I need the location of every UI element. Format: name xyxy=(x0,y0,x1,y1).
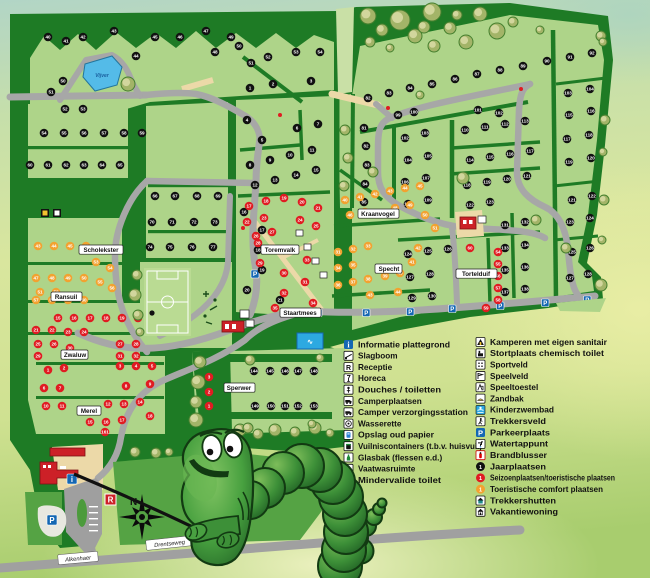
svg-text:13: 13 xyxy=(272,178,278,183)
svg-text:129: 129 xyxy=(408,296,416,301)
svg-text:18: 18 xyxy=(255,248,261,253)
svg-text:38: 38 xyxy=(365,277,371,282)
svg-text:Merel: Merel xyxy=(81,408,97,415)
svg-text:18: 18 xyxy=(263,199,269,204)
svg-text:44: 44 xyxy=(395,290,401,295)
svg-text:65: 65 xyxy=(117,163,123,168)
svg-text:144: 144 xyxy=(250,369,258,374)
svg-text:103: 103 xyxy=(421,131,429,136)
svg-text:137: 137 xyxy=(501,290,509,295)
svg-text:84: 84 xyxy=(362,182,368,187)
svg-text:8: 8 xyxy=(125,384,128,389)
svg-text:P: P xyxy=(408,310,412,316)
svg-text:1: 1 xyxy=(479,465,482,471)
svg-text:50: 50 xyxy=(81,276,87,281)
svg-text:41: 41 xyxy=(357,195,363,200)
svg-text:57: 57 xyxy=(101,131,107,136)
svg-text:1: 1 xyxy=(208,404,211,409)
svg-text:P: P xyxy=(364,311,368,317)
svg-text:11: 11 xyxy=(310,148,315,153)
svg-text:125: 125 xyxy=(424,249,432,254)
svg-text:45: 45 xyxy=(417,184,423,189)
svg-text:48: 48 xyxy=(212,50,218,55)
svg-text:59: 59 xyxy=(483,306,489,311)
svg-text:44: 44 xyxy=(402,186,408,191)
svg-text:69: 69 xyxy=(215,194,221,199)
svg-text:102: 102 xyxy=(495,111,503,116)
svg-text:49: 49 xyxy=(407,203,413,208)
svg-text:34: 34 xyxy=(335,266,341,271)
svg-text:21: 21 xyxy=(33,328,39,333)
svg-text:11: 11 xyxy=(60,404,65,409)
svg-text:16: 16 xyxy=(241,210,247,215)
svg-text:44: 44 xyxy=(133,54,139,59)
svg-text:7: 7 xyxy=(317,122,320,127)
svg-text:130: 130 xyxy=(428,294,436,299)
svg-text:131: 131 xyxy=(501,223,509,228)
svg-text:51: 51 xyxy=(248,61,254,66)
svg-text:85: 85 xyxy=(429,82,435,87)
svg-text:∿: ∿ xyxy=(307,339,313,346)
svg-text:43: 43 xyxy=(387,189,393,194)
svg-text:46: 46 xyxy=(347,213,353,218)
svg-text:150: 150 xyxy=(267,404,275,409)
svg-text:55: 55 xyxy=(61,131,67,136)
svg-text:126: 126 xyxy=(444,247,452,252)
svg-text:49: 49 xyxy=(228,35,234,40)
svg-text:17: 17 xyxy=(119,418,125,423)
svg-text:32: 32 xyxy=(350,247,356,252)
svg-text:Watertappunt: Watertappunt xyxy=(490,440,548,449)
svg-text:107: 107 xyxy=(422,176,430,181)
svg-text:7: 7 xyxy=(59,386,62,391)
svg-text:87: 87 xyxy=(474,72,480,77)
svg-text:P: P xyxy=(543,301,547,307)
svg-text:82: 82 xyxy=(363,144,369,149)
svg-text:17: 17 xyxy=(87,316,93,321)
svg-text:12: 12 xyxy=(252,183,258,188)
svg-text:22: 22 xyxy=(49,328,55,333)
svg-text:Brandblusser: Brandblusser xyxy=(490,451,548,460)
svg-text:Zandbak: Zandbak xyxy=(490,394,524,403)
svg-text:52: 52 xyxy=(62,107,68,112)
svg-text:Horeca: Horeca xyxy=(358,374,386,383)
svg-text:Stortplaats chemisch toilet: Stortplaats chemisch toilet xyxy=(490,349,604,358)
svg-text:16: 16 xyxy=(71,316,77,321)
svg-text:84: 84 xyxy=(407,86,413,91)
svg-text:112: 112 xyxy=(501,122,509,127)
svg-text:120: 120 xyxy=(503,177,511,182)
svg-text:Seizoenplaatsen/toeristische p: Seizoenplaatsen/toeristische plaatsen xyxy=(490,474,615,483)
svg-text:17: 17 xyxy=(259,228,265,233)
svg-text:127: 127 xyxy=(406,275,414,280)
svg-text:92: 92 xyxy=(589,51,595,56)
svg-text:102: 102 xyxy=(401,136,409,141)
svg-text:Zwaluw: Zwaluw xyxy=(64,352,87,359)
svg-text:28: 28 xyxy=(255,241,261,246)
svg-text:Camper verzorgingsstation: Camper verzorgingsstation xyxy=(358,408,468,417)
svg-text:42: 42 xyxy=(372,192,378,197)
svg-text:117: 117 xyxy=(526,149,534,154)
svg-text:22: 22 xyxy=(244,220,250,225)
svg-text:Parkeerplaats: Parkeerplaats xyxy=(490,428,550,437)
svg-text:16: 16 xyxy=(103,420,109,425)
svg-text:67: 67 xyxy=(172,194,178,199)
svg-text:53: 53 xyxy=(293,50,299,55)
svg-text:147: 147 xyxy=(294,369,302,374)
svg-text:10: 10 xyxy=(43,404,49,409)
svg-text:32: 32 xyxy=(133,354,139,359)
svg-text:Informatie plattegrond: Informatie plattegrond xyxy=(358,340,450,349)
svg-text:127: 127 xyxy=(566,276,574,281)
svg-text:54: 54 xyxy=(107,266,113,271)
svg-text:34: 34 xyxy=(310,301,316,306)
svg-text:28: 28 xyxy=(133,342,139,347)
svg-text:31: 31 xyxy=(117,354,123,359)
svg-text:128: 128 xyxy=(584,272,592,277)
svg-text:25: 25 xyxy=(35,342,41,347)
svg-text:37: 37 xyxy=(350,280,356,285)
svg-text:24: 24 xyxy=(81,330,87,335)
svg-text:Wasserette: Wasserette xyxy=(358,419,402,428)
svg-text:111: 111 xyxy=(481,125,489,130)
svg-text:91: 91 xyxy=(567,55,573,60)
svg-text:23: 23 xyxy=(261,216,267,221)
svg-text:50: 50 xyxy=(60,79,66,84)
svg-text:27: 27 xyxy=(269,230,275,235)
svg-text:46: 46 xyxy=(177,35,183,40)
svg-text:136: 136 xyxy=(521,265,529,270)
svg-text:5: 5 xyxy=(261,138,264,143)
svg-text:20: 20 xyxy=(299,200,305,205)
svg-text:2: 2 xyxy=(63,366,66,371)
svg-text:50: 50 xyxy=(422,213,428,218)
svg-text:100: 100 xyxy=(410,110,418,115)
svg-text:25: 25 xyxy=(313,224,319,229)
svg-text:P: P xyxy=(253,271,258,278)
svg-text:41: 41 xyxy=(409,260,415,265)
svg-text:10: 10 xyxy=(287,153,293,158)
svg-text:138: 138 xyxy=(521,287,529,292)
svg-text:119: 119 xyxy=(565,160,573,165)
svg-text:1: 1 xyxy=(479,476,482,482)
svg-text:56: 56 xyxy=(109,286,115,291)
svg-text:P: P xyxy=(49,516,54,525)
svg-text:128: 128 xyxy=(426,272,434,277)
svg-text:54: 54 xyxy=(495,250,501,255)
svg-text:R: R xyxy=(108,496,114,505)
svg-text:Receptie: Receptie xyxy=(358,363,393,372)
svg-text:73: 73 xyxy=(212,220,218,225)
svg-text:1: 1 xyxy=(47,368,50,373)
svg-text:39: 39 xyxy=(382,274,388,279)
svg-text:9: 9 xyxy=(149,382,152,387)
svg-text:21: 21 xyxy=(315,206,321,211)
svg-text:83: 83 xyxy=(386,91,392,96)
svg-text:Trekkershutten: Trekkershutten xyxy=(490,496,556,505)
svg-text:R: R xyxy=(346,365,351,372)
svg-text:86: 86 xyxy=(452,77,458,82)
svg-text:24: 24 xyxy=(297,218,303,223)
svg-text:35: 35 xyxy=(350,263,356,268)
svg-text:116: 116 xyxy=(506,152,514,157)
svg-text:104: 104 xyxy=(586,87,594,92)
svg-text:148: 148 xyxy=(310,369,318,374)
svg-text:74: 74 xyxy=(147,245,153,250)
svg-text:18: 18 xyxy=(147,414,153,419)
svg-text:Kraanvogel: Kraanvogel xyxy=(361,211,395,218)
svg-text:Toeristische comfort plaatsen: Toeristische comfort plaatsen xyxy=(490,485,603,494)
svg-text:132: 132 xyxy=(521,220,529,225)
svg-text:Kamperen met eigen sanitair: Kamperen met eigen sanitair xyxy=(490,338,608,347)
svg-text:Slagboom: Slagboom xyxy=(358,352,398,361)
svg-text:Tortelduif: Tortelduif xyxy=(462,271,491,278)
svg-text:6: 6 xyxy=(43,386,46,391)
svg-text:26: 26 xyxy=(253,234,259,239)
svg-text:90: 90 xyxy=(544,59,550,64)
svg-text:48: 48 xyxy=(49,276,55,281)
svg-text:99: 99 xyxy=(395,113,401,118)
svg-text:Vakantiewoning: Vakantiewoning xyxy=(490,508,558,517)
svg-text:19: 19 xyxy=(259,268,265,273)
svg-text:20: 20 xyxy=(244,288,250,293)
svg-text:1: 1 xyxy=(249,86,252,91)
svg-text:119: 119 xyxy=(483,180,491,185)
svg-text:P: P xyxy=(450,307,454,313)
svg-text:63: 63 xyxy=(81,163,87,168)
svg-text:Camperplaatsen: Camperplaatsen xyxy=(358,397,422,406)
svg-text:14: 14 xyxy=(137,400,143,405)
svg-text:P: P xyxy=(498,304,502,310)
svg-text:120: 120 xyxy=(587,156,595,161)
svg-text:60: 60 xyxy=(467,246,473,251)
svg-text:115: 115 xyxy=(565,113,573,118)
svg-text:104: 104 xyxy=(404,158,412,163)
svg-text:13: 13 xyxy=(121,402,127,407)
svg-text:145: 145 xyxy=(266,369,274,374)
svg-text:52: 52 xyxy=(265,55,271,60)
svg-text:3: 3 xyxy=(208,375,211,380)
svg-text:19: 19 xyxy=(281,196,287,201)
svg-text:5: 5 xyxy=(151,364,154,369)
svg-text:15: 15 xyxy=(313,168,319,173)
svg-text:82: 82 xyxy=(365,96,371,101)
svg-text:110: 110 xyxy=(461,128,469,133)
svg-text:40: 40 xyxy=(45,35,51,40)
svg-text:Speeltoestel: Speeltoestel xyxy=(490,383,538,392)
svg-text:4: 4 xyxy=(135,364,138,369)
svg-text:32: 32 xyxy=(281,291,287,296)
svg-text:83: 83 xyxy=(364,163,370,168)
svg-text:123: 123 xyxy=(486,200,494,205)
svg-text:161: 161 xyxy=(101,430,109,435)
svg-text:54: 54 xyxy=(317,50,323,55)
svg-text:Trekkersveld: Trekkersveld xyxy=(490,417,546,426)
svg-text:14: 14 xyxy=(293,173,299,178)
svg-text:103: 103 xyxy=(564,91,572,96)
svg-text:88: 88 xyxy=(497,68,503,73)
svg-text:44: 44 xyxy=(51,244,57,249)
svg-text:18: 18 xyxy=(103,316,109,321)
svg-text:15: 15 xyxy=(55,316,61,321)
svg-text:Speelveld: Speelveld xyxy=(490,372,528,381)
svg-text:135: 135 xyxy=(501,268,509,273)
svg-text:101: 101 xyxy=(474,108,482,113)
svg-text:55: 55 xyxy=(495,262,501,267)
svg-text:62: 62 xyxy=(63,163,69,168)
svg-text:114: 114 xyxy=(466,158,474,163)
svg-text:151: 151 xyxy=(281,404,289,409)
svg-text:Kinderzwembad: Kinderzwembad xyxy=(490,406,554,415)
svg-text:109: 109 xyxy=(424,198,432,203)
svg-text:122: 122 xyxy=(466,203,474,208)
svg-text:21: 21 xyxy=(277,298,283,303)
svg-text:Specht: Specht xyxy=(379,266,400,273)
svg-text:89: 89 xyxy=(520,64,526,69)
svg-text:123: 123 xyxy=(566,220,574,225)
svg-text:Vijver: Vijver xyxy=(95,73,109,79)
svg-text:19: 19 xyxy=(119,316,125,321)
svg-text:152: 152 xyxy=(294,404,302,409)
svg-text:2: 2 xyxy=(208,390,211,395)
svg-text:P: P xyxy=(478,428,483,437)
svg-text:153: 153 xyxy=(310,404,318,409)
svg-text:124: 124 xyxy=(586,216,594,221)
svg-text:113: 113 xyxy=(521,119,529,124)
svg-text:134: 134 xyxy=(521,243,529,248)
svg-text:72: 72 xyxy=(191,220,197,225)
svg-text:115: 115 xyxy=(486,155,494,160)
svg-text:146: 146 xyxy=(281,369,289,374)
svg-text:26: 26 xyxy=(51,342,57,347)
svg-text:71: 71 xyxy=(169,220,175,225)
svg-text:40: 40 xyxy=(342,198,348,203)
svg-text:41: 41 xyxy=(63,39,69,44)
svg-text:Vaatwasruimte: Vaatwasruimte xyxy=(358,465,416,474)
svg-text:75: 75 xyxy=(167,245,173,250)
svg-text:133: 133 xyxy=(501,246,509,251)
svg-text:43: 43 xyxy=(35,244,41,249)
svg-text:56: 56 xyxy=(81,131,87,136)
svg-text:118: 118 xyxy=(585,133,593,138)
svg-text:53: 53 xyxy=(93,260,99,265)
svg-text:60: 60 xyxy=(27,163,33,168)
svg-text:66: 66 xyxy=(152,194,158,199)
svg-text:Douches / toiletten: Douches / toiletten xyxy=(358,386,441,395)
svg-text:Glasbak (flessen e.d.): Glasbak (flessen e.d.) xyxy=(358,453,442,462)
svg-text:64: 64 xyxy=(99,163,105,168)
svg-text:8: 8 xyxy=(249,163,252,168)
svg-text:51: 51 xyxy=(432,226,438,231)
svg-text:149: 149 xyxy=(251,404,259,409)
svg-text:23: 23 xyxy=(65,330,71,335)
svg-text:33: 33 xyxy=(304,258,310,263)
svg-text:3: 3 xyxy=(119,364,122,369)
svg-text:43: 43 xyxy=(367,293,373,298)
svg-text:121: 121 xyxy=(568,198,576,203)
svg-text:17: 17 xyxy=(246,204,252,209)
svg-text:Jaarplaatsen: Jaarplaatsen xyxy=(490,462,546,471)
svg-text:81: 81 xyxy=(361,126,367,131)
svg-text:1: 1 xyxy=(479,487,482,493)
svg-text:58: 58 xyxy=(495,298,501,303)
svg-text:45: 45 xyxy=(67,244,73,249)
svg-text:36: 36 xyxy=(335,283,341,288)
svg-text:35: 35 xyxy=(272,306,278,311)
svg-text:126: 126 xyxy=(586,246,594,251)
svg-text:Toremvalk: Toremvalk xyxy=(265,247,296,254)
svg-text:61: 61 xyxy=(45,163,51,168)
svg-text:51: 51 xyxy=(48,90,54,95)
svg-text:45: 45 xyxy=(152,35,158,40)
svg-text:Ransuil: Ransuil xyxy=(55,294,78,301)
svg-text:27: 27 xyxy=(117,342,123,347)
svg-text:Staartmees: Staartmees xyxy=(283,310,317,317)
svg-text:59: 59 xyxy=(139,131,145,136)
svg-text:Scholekster: Scholekster xyxy=(83,247,119,254)
svg-text:57: 57 xyxy=(33,298,39,303)
svg-text:15: 15 xyxy=(87,420,93,425)
svg-text:6: 6 xyxy=(296,126,299,131)
svg-text:55: 55 xyxy=(97,280,103,285)
svg-text:2: 2 xyxy=(272,82,275,87)
svg-text:121: 121 xyxy=(523,174,531,179)
svg-text:31: 31 xyxy=(302,280,308,285)
svg-text:i: i xyxy=(71,475,73,484)
svg-text:Opslag oud papier: Opslag oud papier xyxy=(358,431,435,440)
svg-text:31: 31 xyxy=(335,250,341,255)
svg-text:42: 42 xyxy=(415,246,421,251)
svg-text:47: 47 xyxy=(33,276,39,281)
svg-text:Sperwer: Sperwer xyxy=(227,385,252,392)
svg-text:Mindervalide toilet: Mindervalide toilet xyxy=(358,476,441,485)
svg-text:70: 70 xyxy=(149,220,155,225)
svg-text:51: 51 xyxy=(37,290,43,295)
svg-text:43: 43 xyxy=(111,29,117,34)
svg-text:12: 12 xyxy=(105,402,111,407)
svg-text:9: 9 xyxy=(269,158,272,163)
svg-text:122: 122 xyxy=(588,194,596,199)
svg-text:Sportveld: Sportveld xyxy=(490,360,528,369)
svg-text:76: 76 xyxy=(189,245,195,250)
svg-text:68: 68 xyxy=(194,194,200,199)
svg-text:3: 3 xyxy=(310,79,313,84)
svg-text:117: 117 xyxy=(563,137,571,142)
svg-text:116: 116 xyxy=(587,109,595,114)
svg-text:50: 50 xyxy=(236,44,242,49)
svg-text:Vuilniscontainers (t.b.v. huis: Vuilniscontainers (t.b.v. huisvuil) xyxy=(358,442,482,451)
svg-text:29: 29 xyxy=(35,354,41,359)
svg-text:47: 47 xyxy=(203,29,209,34)
svg-text:53: 53 xyxy=(80,107,86,112)
svg-text:49: 49 xyxy=(65,276,71,281)
svg-text:42: 42 xyxy=(80,35,86,40)
svg-text:124: 124 xyxy=(404,252,412,257)
svg-text:57: 57 xyxy=(495,286,501,291)
svg-text:4: 4 xyxy=(246,118,249,123)
svg-text:29: 29 xyxy=(257,261,263,266)
svg-text:54: 54 xyxy=(41,131,47,136)
svg-text:33: 33 xyxy=(365,244,371,249)
svg-text:105: 105 xyxy=(424,154,432,159)
svg-text:77: 77 xyxy=(210,245,216,250)
svg-text:58: 58 xyxy=(121,131,127,136)
svg-text:30: 30 xyxy=(281,271,287,276)
